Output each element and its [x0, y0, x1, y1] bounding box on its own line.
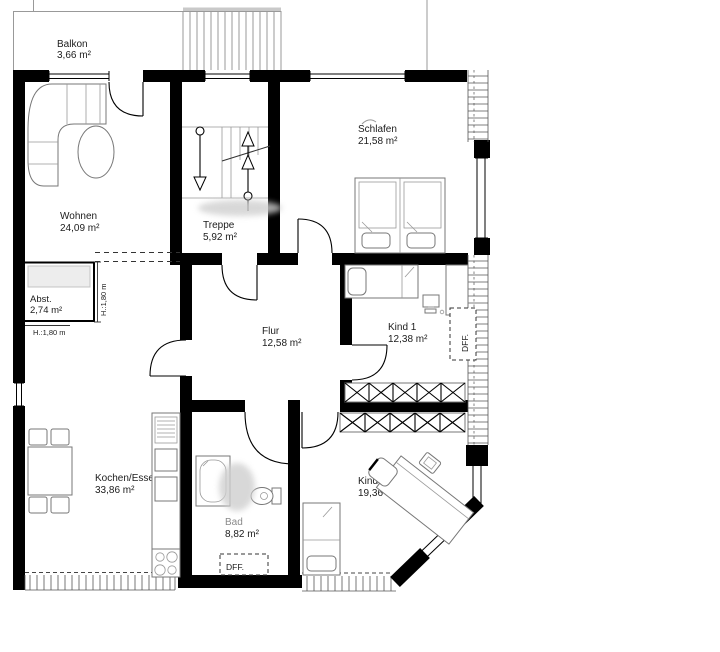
window-balcony	[49, 71, 109, 81]
wardrobe-icon	[345, 383, 465, 402]
kind1-label: Kind 1	[388, 322, 417, 333]
floor-plan: Balkon 3,66 m²	[0, 0, 720, 652]
roof-hatch-right-top	[468, 70, 488, 142]
single-bed-icon	[345, 265, 418, 298]
flur-area: 12,58 m²	[262, 338, 302, 349]
window-left-wall	[14, 383, 24, 406]
room-kochen: Kochen/Essen 33,86 m²	[28, 413, 180, 577]
roof-hatch-bottom-mid	[302, 573, 396, 591]
kitchen-counter-icon	[152, 413, 180, 577]
balcony-hatch	[190, 11, 274, 70]
window-treppe	[205, 71, 250, 81]
schlafen-area: 21,58 m²	[358, 136, 398, 147]
computer-icon	[423, 295, 444, 314]
watermark-smudge	[219, 463, 255, 511]
kochen-label: Kochen/Essen	[95, 473, 160, 484]
room-wohnen: Wohnen 24,09 m²	[28, 84, 114, 234]
kind1-area: 12,38 m²	[388, 334, 428, 345]
abst-height-side: H.:1,80 m	[99, 283, 108, 316]
coffee-table-icon	[78, 126, 114, 178]
abst-height-bottom: H.:1,80 m	[33, 328, 66, 337]
bad-label: Bad	[225, 517, 243, 528]
watermark-smudge	[198, 200, 282, 216]
bad-area: 8,82 m²	[225, 529, 260, 540]
schlafen-label: Schlafen	[358, 124, 397, 135]
balcony: Balkon 3,66 m²	[13, 0, 281, 70]
single-bed-icon	[303, 503, 340, 575]
room-treppe: Treppe 5,92 m²	[182, 127, 282, 243]
bad-dff-label: DFF.	[226, 562, 244, 572]
door-schlafen	[298, 219, 332, 253]
flur-label: Flur	[262, 326, 280, 337]
double-bed-icon	[355, 178, 445, 253]
door-treppe	[222, 265, 257, 300]
room-kind1: DFF. Kind 1 12,38 m²	[345, 265, 476, 402]
room-abst: Abst. 2,74 m² H.:1,80 m H.:1,80 m	[25, 262, 108, 337]
treppe-label: Treppe	[203, 220, 235, 231]
laptop-icon	[419, 452, 442, 474]
door-kind2	[302, 412, 338, 448]
window-schlafen-top	[310, 71, 405, 81]
room-bad: Bad 8,82 m² DFF.	[196, 456, 281, 575]
stove-icon	[152, 549, 180, 577]
door-kochen	[150, 340, 186, 376]
balcony-area: 3,66 m²	[57, 50, 92, 61]
abst-area: 2,74 m²	[30, 305, 62, 316]
room-flur: Flur 12,58 m²	[262, 326, 302, 349]
door-balcony	[109, 82, 143, 116]
door-bad	[245, 412, 294, 464]
treppe-area: 5,92 m²	[203, 232, 238, 243]
kochen-area: 33,86 m²	[95, 485, 135, 496]
door-kind1	[352, 345, 387, 380]
stairs-icon	[182, 127, 270, 211]
wardrobe-icon	[340, 413, 465, 432]
balcony-label: Balkon	[57, 39, 88, 50]
dining-table-icon	[28, 429, 72, 513]
wohnen-label: Wohnen	[60, 211, 97, 222]
floor-plan-page: Balkon 3,66 m²	[0, 0, 720, 652]
kind1-dff-label: DFF.	[460, 334, 470, 352]
room-schlafen: Schlafen 21,58 m²	[355, 120, 445, 253]
wohnen-area: 24,09 m²	[60, 223, 100, 234]
window-schlafen-right	[475, 158, 488, 238]
balcony-roof-band	[183, 8, 281, 12]
abst-label: Abst.	[30, 294, 52, 305]
shelf-icon	[28, 266, 90, 287]
toilet-icon	[251, 488, 281, 505]
room-kind2: Kind 2 19,36 m²	[303, 413, 474, 575]
